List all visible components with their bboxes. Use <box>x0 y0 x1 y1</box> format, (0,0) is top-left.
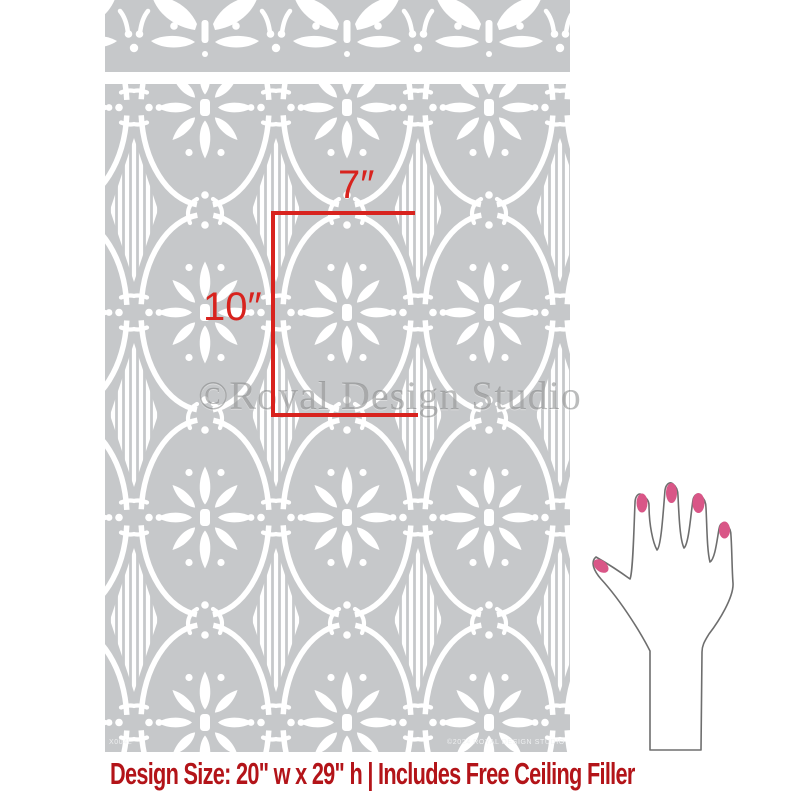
hand-graphic <box>585 455 745 755</box>
bottom-dimension-line <box>271 413 418 417</box>
hand-outline <box>593 483 733 750</box>
design-size-caption: Design Size: 20" w x 29" h | Includes Fr… <box>110 756 635 792</box>
border-strip-stencil <box>105 0 570 72</box>
watermark: ©Royal Design Studio <box>198 372 618 419</box>
width-label: 7″ <box>338 163 374 208</box>
width-dimension-line <box>271 211 415 215</box>
copyright-note: ©2024 ROYAL DESIGN STUDIO <box>447 739 565 746</box>
ring-nail <box>693 493 705 513</box>
index-nail <box>637 494 648 513</box>
product-image: X004L ©2024 ROYAL DESIGN STUDIO ©Royal D… <box>0 0 800 800</box>
middle-nail <box>666 483 677 503</box>
height-dimension-line <box>271 211 275 417</box>
hand-illustration <box>585 455 745 760</box>
pinky-nail <box>719 522 730 539</box>
border-strip-pattern <box>105 0 570 72</box>
height-label: 10″ <box>203 285 262 330</box>
product-code: X004L <box>109 739 132 746</box>
